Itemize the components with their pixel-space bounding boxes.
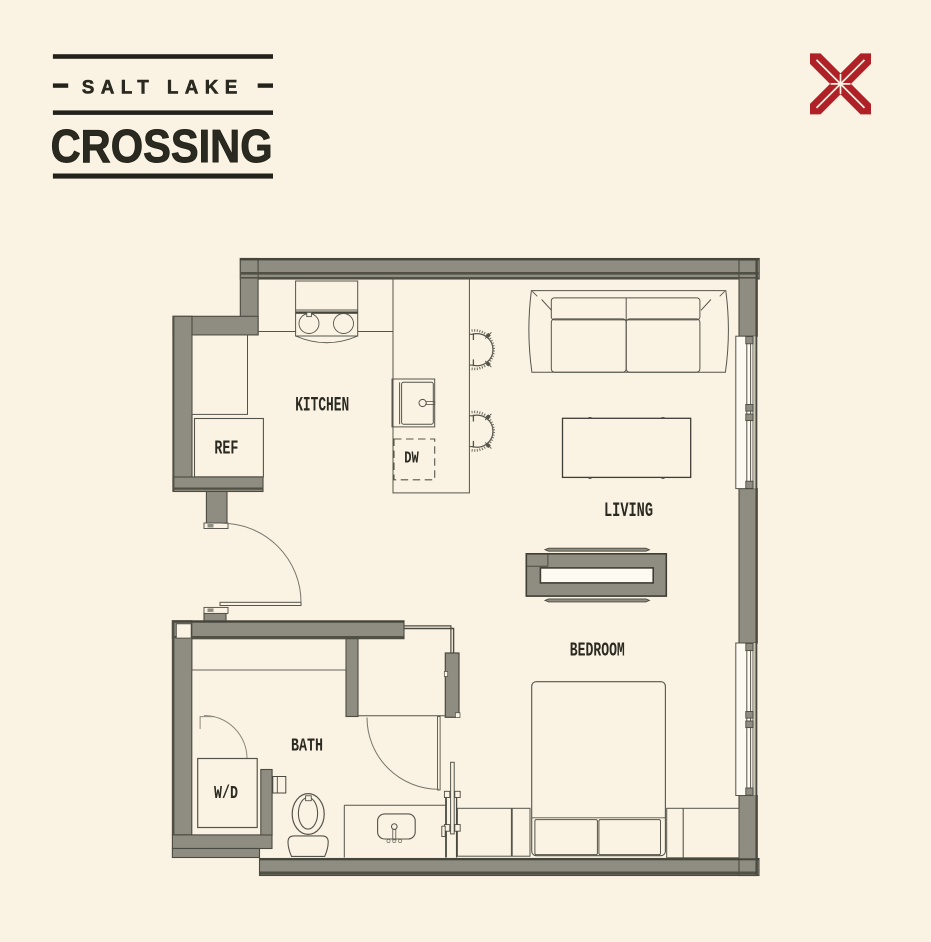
svg-text:CROSSING: CROSSING bbox=[51, 120, 273, 172]
svg-text:REF: REF bbox=[214, 437, 238, 459]
svg-text:LIVING: LIVING bbox=[604, 500, 653, 523]
svg-text:BATH: BATH bbox=[291, 736, 323, 757]
svg-text:DW: DW bbox=[404, 449, 419, 468]
svg-text:W/D: W/D bbox=[214, 784, 238, 804]
svg-text:BEDROOM: BEDROOM bbox=[570, 639, 625, 661]
svg-text:SALT LAKE: SALT LAKE bbox=[82, 78, 244, 99]
svg-text:KITCHEN: KITCHEN bbox=[295, 394, 349, 417]
